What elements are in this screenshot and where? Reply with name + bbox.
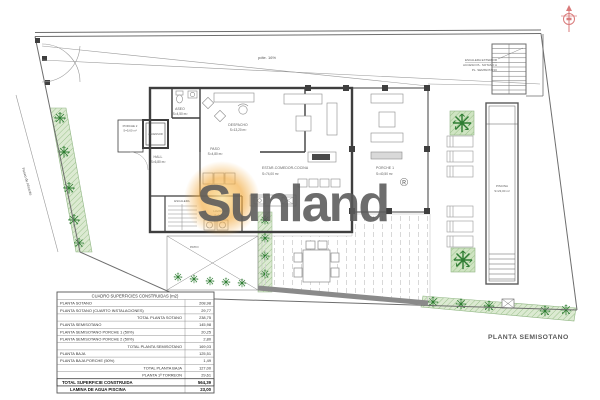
- svg-text:TOTAL PLANTA BAJA: TOTAL PLANTA BAJA: [143, 365, 182, 370]
- svg-text:LAMINA DE AGUA PISCINA: LAMINA DE AGUA PISCINA: [70, 387, 126, 392]
- exterior-stairs: [492, 34, 543, 96]
- svg-text:145,98: 145,98: [199, 322, 211, 327]
- svg-text:238,75: 238,75: [199, 315, 211, 320]
- svg-text:PLANTA SEMISOTANO PORCHE 1 (50: PLANTA SEMISOTANO PORCHE 1 (50%): [60, 329, 134, 334]
- svg-text:23,00: 23,00: [200, 387, 211, 392]
- svg-text:29,77: 29,77: [201, 308, 211, 313]
- sunland-watermark: Sunland ®: [184, 161, 408, 237]
- svg-text:PLANTA BAJA: PLANTA BAJA: [60, 351, 86, 356]
- svg-text:564,39: 564,39: [198, 380, 212, 385]
- svg-text:125,51: 125,51: [199, 351, 211, 356]
- north-arrow-icon: [561, 5, 577, 32]
- room-label-porche2: PORCHE 2 S=5,60 m²: [123, 124, 138, 133]
- svg-text:S=6,80 m²: S=6,80 m²: [151, 160, 166, 164]
- table-row: PLANTA 1ª TORREON 29,61: [142, 373, 211, 378]
- plan-title: PLANTA SEMISOTANO: [488, 334, 569, 341]
- patio-plants: [174, 273, 246, 287]
- room-label-paso: PASO S=4,80 m²: [208, 147, 223, 156]
- svg-text:20,25: 20,25: [201, 329, 211, 334]
- svg-text:PL. SEMISOTANO: PL. SEMISOTANO: [472, 68, 498, 72]
- porch-furniture: [371, 94, 403, 159]
- svg-text:PLANTA SEMISOTANO: PLANTA SEMISOTANO: [60, 322, 101, 327]
- svg-text:PLANTA 1ª TORREON: PLANTA 1ª TORREON: [142, 373, 182, 378]
- garden-bottom-band: [421, 296, 576, 321]
- svg-text:TOTAL PLANTA SEMISOTANO: TOTAL PLANTA SEMISOTANO: [128, 344, 182, 349]
- svg-text:PLANTA SOTANO: PLANTA SOTANO: [60, 301, 92, 306]
- room-label-aseo: ASEO S=4,50 m²: [173, 107, 188, 116]
- office-furniture: [202, 93, 254, 122]
- table-header: CUADRO SUPERFICIES CONSTRUIDAS (m2): [92, 293, 179, 298]
- table-row: TOTAL PLANTA BAJA 127,00: [143, 365, 211, 370]
- table-row: TOTAL PLANTA SEMISOTANO 169,03: [128, 344, 211, 349]
- svg-text:ACCESO PL. SOTANO A: ACCESO PL. SOTANO A: [463, 63, 497, 67]
- svg-text:169,03: 169,03: [199, 344, 211, 349]
- svg-text:PORCHE 2: PORCHE 2: [123, 124, 138, 128]
- room-label-hall: HALL S=6,80 m²: [151, 155, 166, 164]
- garden-gate: [502, 299, 514, 308]
- svg-text:127,00: 127,00: [199, 365, 212, 370]
- svg-text:ESCALERA EXTERIOR: ESCALERA EXTERIOR: [465, 58, 498, 62]
- garden-left-strip: [50, 108, 92, 252]
- watermark-text: Sunland: [197, 175, 388, 233]
- svg-text:PISCINA: PISCINA: [496, 184, 508, 188]
- table-row: TOTAL PLANTA SOTANO 238,75: [137, 315, 211, 320]
- svg-text:S=13,20 m²: S=13,20 m²: [230, 128, 247, 132]
- areas-table: CUADRO SUPERFICIES CONSTRUIDAS (m2) PLAN…: [57, 292, 214, 393]
- registered-mark: ®: [400, 177, 408, 189]
- plan-drawing: Paseo de Alicante pdte. 16% ESCALERA EXT…: [0, 0, 600, 400]
- svg-text:PORCHE 1: PORCHE 1: [376, 166, 394, 170]
- bathroom-fixtures: [176, 91, 197, 103]
- svg-text:S=23,00 m²: S=23,00 m²: [494, 189, 510, 193]
- pool: [486, 103, 518, 284]
- svg-text:DESPACHO: DESPACHO: [228, 123, 248, 127]
- street-label: Paseo de Alicante: [21, 167, 33, 196]
- svg-text:ESTAR-COMEDOR-COCINA: ESTAR-COMEDOR-COCINA: [262, 166, 309, 170]
- svg-text:PLANTA SOTANO (CUARTO INSTALAC: PLANTA SOTANO (CUARTO INSTALACIONES): [60, 308, 144, 313]
- svg-text:PLANTA BAJA PORCHE (50%): PLANTA BAJA PORCHE (50%): [60, 358, 115, 363]
- svg-text:29,61: 29,61: [201, 373, 211, 378]
- patio-label: PATIO: [190, 245, 199, 249]
- svg-text:2,80: 2,80: [203, 337, 211, 342]
- svg-text:TOTAL PLANTA SOTANO: TOTAL PLANTA SOTANO: [137, 315, 182, 320]
- svg-text:PLANTA SEMISOTANO PORCHE 2 (50: PLANTA SEMISOTANO PORCHE 2 (50%): [60, 337, 134, 342]
- svg-text:ASCENSOR: ASCENSOR: [148, 132, 163, 136]
- sun-loungers: [447, 136, 473, 247]
- svg-text:TOTAL SUPERFICIE CONSTRUIDA: TOTAL SUPERFICIE CONSTRUIDA: [62, 380, 133, 385]
- svg-text:S=4,80 m²: S=4,80 m²: [208, 152, 223, 156]
- svg-text:208,98: 208,98: [199, 301, 211, 306]
- room-label-despacho: DESPACHO S=13,20 m²: [228, 123, 248, 132]
- svg-text:S=4,50 m²: S=4,50 m²: [173, 112, 188, 116]
- exterior-stairs-note: ESCALERA EXTERIOR ACCESO PL. SOTANO A PL…: [463, 58, 498, 72]
- patio: [167, 236, 258, 290]
- svg-text:PASO: PASO: [210, 147, 220, 151]
- pool-label: PISCINA S=23,00 m²: [494, 184, 510, 193]
- svg-text:HALL: HALL: [154, 155, 163, 159]
- svg-text:ASEO: ASEO: [175, 107, 185, 111]
- room-label-ascensor: ASCENSOR: [148, 132, 163, 136]
- svg-text:S=5,60 m²: S=5,60 m²: [123, 129, 136, 133]
- floor-plan-sheet: Paseo de Alicante pdte. 16% ESCALERA EXT…: [0, 0, 600, 400]
- svg-text:1,49: 1,49: [203, 358, 211, 363]
- ramp-slope-label: pdte. 16%: [258, 55, 276, 60]
- garden-pool-side: [450, 111, 475, 272]
